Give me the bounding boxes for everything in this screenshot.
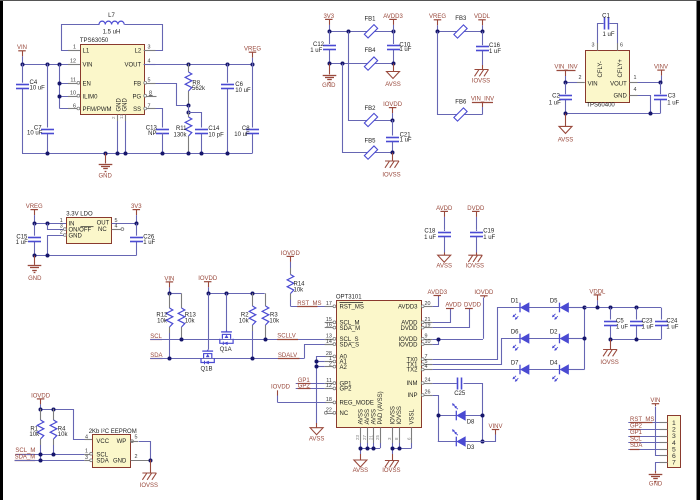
svg-text:130k: 130k bbox=[173, 132, 187, 138]
svg-text:Q1B: Q1B bbox=[200, 366, 212, 372]
svg-text:VIN_INV: VIN_INV bbox=[554, 65, 577, 71]
svg-text:NC: NC bbox=[340, 411, 349, 417]
svg-text:AVSS: AVSS bbox=[309, 436, 325, 442]
svg-text:1 uF: 1 uF bbox=[489, 49, 501, 55]
svg-text:1 uF: 1 uF bbox=[642, 324, 654, 330]
svg-text:INM: INM bbox=[407, 381, 418, 387]
svg-text:D7: D7 bbox=[511, 360, 519, 366]
svg-text:C25: C25 bbox=[454, 391, 466, 397]
svg-text:12: 12 bbox=[326, 383, 332, 389]
svg-text:AVSS: AVSS bbox=[385, 82, 401, 88]
svg-text:VOUT: VOUT bbox=[125, 62, 142, 68]
svg-text:AVDD: AVDD bbox=[445, 303, 462, 309]
svg-text:FB1: FB1 bbox=[364, 17, 376, 23]
svg-text:IOVSS: IOVSS bbox=[382, 468, 400, 474]
svg-text:1: 1 bbox=[73, 45, 76, 51]
svg-text:4: 4 bbox=[425, 364, 428, 370]
svg-text:2: 2 bbox=[329, 361, 332, 367]
svg-text:Q1A: Q1A bbox=[220, 347, 232, 353]
svg-text:IOVSS: IOVSS bbox=[466, 263, 484, 269]
svg-text:VIN: VIN bbox=[83, 62, 93, 68]
svg-text:AVDD3: AVDD3 bbox=[398, 305, 418, 311]
svg-text:1 uF: 1 uF bbox=[399, 47, 411, 53]
svg-text:PG: PG bbox=[133, 94, 142, 100]
svg-text:10: 10 bbox=[70, 91, 76, 97]
svg-text:2: 2 bbox=[60, 230, 63, 236]
svg-text:24: 24 bbox=[425, 378, 431, 384]
svg-text:AVSS: AVSS bbox=[558, 138, 574, 144]
svg-text:IOVSS: IOVSS bbox=[382, 173, 400, 179]
svg-text:VOUT: VOUT bbox=[610, 82, 627, 88]
svg-text:2: 2 bbox=[135, 454, 138, 460]
svg-text:C18: C18 bbox=[424, 229, 436, 235]
svg-text:12: 12 bbox=[70, 59, 76, 65]
svg-text:23: 23 bbox=[355, 434, 360, 440]
svg-text:10 uF: 10 uF bbox=[235, 88, 251, 94]
svg-text:R3: R3 bbox=[270, 313, 278, 319]
svg-text:OUT: OUT bbox=[97, 221, 110, 227]
svg-text:7: 7 bbox=[672, 460, 676, 467]
svg-text:19: 19 bbox=[425, 322, 431, 328]
svg-text:4: 4 bbox=[634, 87, 637, 93]
svg-text:2Kb I²C EEPROM: 2Kb I²C EEPROM bbox=[89, 429, 137, 435]
svg-text:GND: GND bbox=[613, 94, 627, 100]
svg-text:10: 10 bbox=[425, 339, 431, 345]
svg-text:10 uF: 10 uF bbox=[27, 131, 43, 137]
svg-text:FB2: FB2 bbox=[364, 106, 376, 112]
svg-text:GP2: GP2 bbox=[340, 387, 353, 393]
svg-text:TPS63050: TPS63050 bbox=[80, 38, 109, 44]
svg-text:FB5: FB5 bbox=[364, 139, 376, 145]
svg-text:D8: D8 bbox=[467, 419, 475, 425]
svg-text:D3: D3 bbox=[467, 445, 475, 451]
svg-text:FB6: FB6 bbox=[455, 100, 467, 106]
svg-text:1 uF: 1 uF bbox=[400, 138, 412, 144]
svg-text:2: 2 bbox=[579, 75, 582, 81]
svg-text:10 uF: 10 uF bbox=[234, 132, 250, 138]
svg-text:AVSS: AVSS bbox=[365, 409, 371, 425]
svg-text:FB: FB bbox=[134, 82, 142, 88]
svg-text:RST_MS: RST_MS bbox=[340, 305, 364, 311]
svg-text:REG_MODE: REG_MODE bbox=[340, 401, 374, 407]
svg-text:C1: C1 bbox=[602, 13, 610, 19]
svg-text:7: 7 bbox=[148, 103, 151, 109]
svg-text:C14: C14 bbox=[208, 126, 220, 132]
svg-text:21: 21 bbox=[368, 434, 373, 440]
svg-text:A2: A2 bbox=[340, 365, 348, 371]
svg-text:1 uF: 1 uF bbox=[616, 324, 628, 330]
svg-text:GND: GND bbox=[113, 458, 127, 464]
svg-text:ILIM0: ILIM0 bbox=[83, 94, 99, 100]
svg-text:SCLLV: SCLLV bbox=[277, 334, 296, 340]
svg-text:GND: GND bbox=[649, 481, 663, 487]
svg-text:1: 1 bbox=[634, 75, 637, 81]
svg-text:10k: 10k bbox=[269, 319, 280, 325]
svg-text:FB3: FB3 bbox=[455, 16, 467, 22]
svg-text:IOVSS: IOVSS bbox=[140, 483, 158, 489]
svg-text:GND: GND bbox=[69, 233, 83, 239]
svg-text:1 uF: 1 uF bbox=[549, 101, 561, 107]
svg-text:22: 22 bbox=[326, 408, 332, 414]
svg-text:AVSS: AVSS bbox=[372, 409, 378, 425]
svg-text:1 uF: 1 uF bbox=[143, 240, 155, 246]
svg-text:D2: D2 bbox=[550, 329, 558, 335]
svg-text:4: 4 bbox=[115, 224, 118, 230]
svg-text:C19: C19 bbox=[483, 229, 495, 235]
svg-text:10 pF: 10 pF bbox=[208, 132, 224, 138]
svg-text:SS: SS bbox=[133, 107, 141, 113]
svg-text:1 uF: 1 uF bbox=[483, 235, 495, 241]
svg-text:FB4: FB4 bbox=[364, 48, 376, 54]
svg-text:SDA: SDA bbox=[630, 443, 642, 449]
svg-text:27: 27 bbox=[362, 434, 367, 440]
svg-text:D1: D1 bbox=[511, 298, 519, 304]
svg-text:R2: R2 bbox=[241, 313, 249, 319]
svg-text:GND: GND bbox=[99, 173, 113, 179]
svg-text:IOVSS: IOVSS bbox=[472, 78, 490, 84]
svg-text:10k: 10k bbox=[294, 287, 305, 293]
svg-text:SCL_M: SCL_M bbox=[15, 448, 35, 454]
svg-text:IOVDD: IOVDD bbox=[271, 385, 291, 391]
svg-text:11: 11 bbox=[70, 78, 76, 84]
svg-text:17: 17 bbox=[326, 301, 332, 307]
svg-text:GND: GND bbox=[123, 98, 129, 112]
svg-text:10k: 10k bbox=[239, 319, 250, 325]
svg-text:L2: L2 bbox=[135, 49, 142, 55]
svg-text:VIN: VIN bbox=[588, 82, 598, 88]
svg-text:C2: C2 bbox=[552, 94, 560, 100]
svg-text:GP1: GP1 bbox=[630, 430, 643, 436]
svg-text:10k: 10k bbox=[29, 432, 40, 438]
svg-text:3: 3 bbox=[85, 455, 88, 461]
svg-text:TPS60400: TPS60400 bbox=[586, 103, 615, 109]
svg-text:1 uF: 1 uF bbox=[667, 101, 679, 107]
svg-text:VIN_INV: VIN_INV bbox=[471, 97, 494, 103]
svg-text:IOVSS: IOVSS bbox=[397, 406, 403, 424]
svg-text:AVSS: AVSS bbox=[358, 409, 364, 425]
svg-text:5: 5 bbox=[148, 78, 151, 84]
svg-text:3.3V LDO: 3.3V LDO bbox=[66, 212, 93, 218]
svg-text:DVDD: DVDD bbox=[464, 303, 482, 309]
svg-text:INP: INP bbox=[407, 393, 417, 399]
svg-text:GND: GND bbox=[28, 276, 42, 282]
svg-text:1 uF: 1 uF bbox=[310, 48, 322, 54]
svg-text:IOVDD: IOVDD bbox=[398, 342, 418, 348]
svg-text:VSSL: VSSL bbox=[410, 408, 416, 424]
svg-text:PFM/PWM: PFM/PWM bbox=[83, 107, 112, 113]
svg-text:GND: GND bbox=[322, 83, 336, 89]
svg-text:5: 5 bbox=[135, 434, 138, 440]
svg-text:10k: 10k bbox=[58, 432, 69, 438]
svg-text:13: 13 bbox=[119, 113, 124, 119]
svg-text:C3: C3 bbox=[668, 94, 676, 100]
svg-text:16: 16 bbox=[326, 322, 332, 328]
svg-text:10k: 10k bbox=[157, 319, 168, 325]
svg-text:18: 18 bbox=[326, 397, 332, 403]
svg-text:4: 4 bbox=[85, 434, 88, 440]
svg-text:SDA_M: SDA_M bbox=[340, 326, 361, 332]
svg-text:IOVSS: IOVSS bbox=[600, 360, 618, 366]
svg-text:1 uF: 1 uF bbox=[666, 324, 678, 330]
svg-text:SCL: SCL bbox=[630, 437, 642, 443]
svg-text:1.5 uH: 1.5 uH bbox=[103, 30, 121, 36]
svg-text:R12: R12 bbox=[156, 313, 168, 319]
svg-text:14: 14 bbox=[326, 339, 332, 345]
svg-text:GP2: GP2 bbox=[630, 423, 643, 429]
svg-text:SDA: SDA bbox=[96, 458, 108, 464]
svg-text:SDA_M: SDA_M bbox=[15, 454, 36, 460]
svg-text:SDA_S: SDA_S bbox=[340, 342, 360, 348]
svg-text:OPT3101: OPT3101 bbox=[336, 294, 362, 300]
svg-text:EN: EN bbox=[83, 82, 91, 88]
svg-text:VCC: VCC bbox=[96, 439, 109, 445]
svg-text:PAD (AVSS): PAD (AVSS) bbox=[378, 391, 384, 424]
svg-text:WP: WP bbox=[117, 439, 127, 445]
svg-text:AVSS: AVSS bbox=[353, 468, 369, 474]
svg-text:4: 4 bbox=[148, 59, 151, 65]
svg-text:TX2: TX2 bbox=[406, 368, 418, 374]
svg-text:3: 3 bbox=[148, 45, 151, 51]
svg-text:AVSS: AVSS bbox=[436, 263, 452, 269]
svg-text:6: 6 bbox=[620, 43, 623, 49]
svg-text:25: 25 bbox=[375, 434, 380, 440]
svg-text:CFLY-: CFLY- bbox=[598, 61, 604, 77]
svg-text:R11: R11 bbox=[176, 126, 187, 132]
svg-text:1 uF: 1 uF bbox=[602, 32, 614, 38]
svg-text:NC: NC bbox=[98, 227, 107, 233]
svg-text:3: 3 bbox=[592, 43, 595, 49]
svg-text:562k: 562k bbox=[192, 86, 206, 92]
svg-text:10 uF: 10 uF bbox=[30, 86, 46, 92]
svg-text:D6: D6 bbox=[511, 329, 519, 335]
svg-text:NP: NP bbox=[148, 131, 156, 137]
svg-text:1 uF: 1 uF bbox=[16, 240, 28, 246]
svg-text:D5: D5 bbox=[550, 298, 558, 304]
svg-text:20: 20 bbox=[425, 301, 431, 307]
svg-text:26: 26 bbox=[425, 390, 431, 396]
svg-text:L7: L7 bbox=[108, 13, 115, 19]
svg-text:1 uF: 1 uF bbox=[424, 235, 436, 241]
svg-text:L1: L1 bbox=[83, 49, 90, 55]
svg-text:D4: D4 bbox=[550, 360, 558, 366]
svg-text:CFLY+: CFLY+ bbox=[618, 59, 624, 78]
svg-text:IOVSS: IOVSS bbox=[390, 406, 396, 424]
svg-text:DVDD: DVDD bbox=[400, 326, 418, 332]
svg-text:10k: 10k bbox=[185, 319, 196, 325]
svg-text:R13: R13 bbox=[185, 313, 197, 319]
svg-text:1: 1 bbox=[85, 448, 88, 454]
svg-text:6: 6 bbox=[73, 103, 76, 109]
